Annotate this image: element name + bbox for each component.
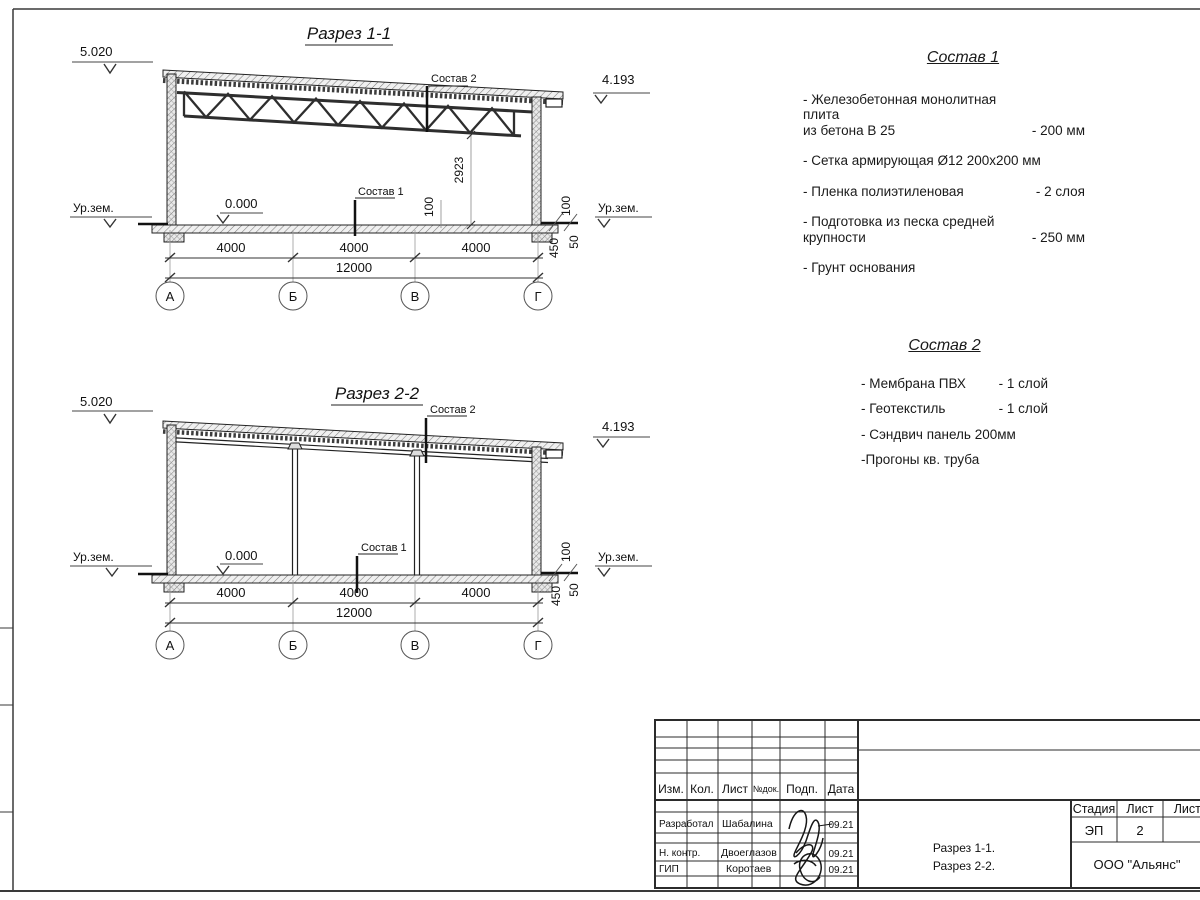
ground-mark-left-2: Ур.зем. bbox=[70, 550, 152, 576]
sostav2-item-name: - Геотекстиль bbox=[861, 401, 945, 417]
sostav2-item-name: -Прогоны кв. труба bbox=[861, 452, 979, 468]
row-name-korotaev: Коротаев bbox=[726, 863, 772, 875]
elev-right-value: 4.193 bbox=[602, 72, 635, 87]
doc-name-line2: Разрез 2-2. bbox=[933, 859, 995, 873]
company-name: ООО "Альянс" bbox=[1094, 857, 1181, 872]
col-podp: Подп. bbox=[786, 782, 818, 796]
col-data: Дата bbox=[828, 782, 855, 796]
dim-450: 450 bbox=[547, 238, 561, 258]
sheet-label: Лист bbox=[1126, 802, 1153, 816]
stage-label: Стадия bbox=[1073, 802, 1116, 816]
ground-right-label: Ур.зем. bbox=[598, 201, 639, 215]
axis-g: Г bbox=[534, 289, 541, 304]
zero-level-value: 0.000 bbox=[225, 196, 258, 211]
drawing-sheet: Разрез 1-1 5.020 4. bbox=[0, 0, 1200, 900]
dim-2923-value: 2923 bbox=[452, 156, 466, 183]
column-a bbox=[167, 74, 176, 225]
sostav1-title: Состав 1 bbox=[803, 50, 1085, 66]
axis-bubbles: А Б В Г bbox=[156, 282, 552, 310]
sostav1-item-name: - Пленка полиэтиленовая bbox=[803, 184, 964, 200]
roof-slab-2 bbox=[163, 421, 563, 450]
column-v-mid bbox=[410, 450, 424, 575]
row-date-3: 09.21 bbox=[828, 865, 853, 876]
axis-a-2: А bbox=[166, 638, 175, 653]
leader-sostav1-label-2: Состав 1 bbox=[361, 542, 407, 554]
ground-right-label-2: Ур.зем. bbox=[598, 550, 639, 564]
span-dim-2: 4000 bbox=[340, 240, 369, 255]
col-izm: Изм. bbox=[658, 782, 684, 796]
dim-100-mid: 100 bbox=[422, 197, 436, 217]
row-date-2: 09.21 bbox=[828, 849, 853, 860]
sostav1-item-name: - Грунт основания bbox=[803, 260, 915, 276]
axis-b-2: Б bbox=[289, 638, 298, 653]
total-dim: 12000 bbox=[336, 260, 372, 275]
sostav2-panel: Состав 2 - Мембрана ПВХ - 1 слой - Геоте… bbox=[861, 338, 1048, 478]
axis-b: Б bbox=[289, 289, 298, 304]
sostav2-item-value: - 1 слой bbox=[991, 401, 1048, 417]
axis-g-2: Г bbox=[534, 638, 541, 653]
row-name-dvoeglazov: Двоеглазов bbox=[721, 847, 777, 859]
section-1-1: Разрез 1-1 5.020 4. bbox=[70, 24, 652, 310]
axis-v-2: В bbox=[411, 638, 420, 653]
column-a-2 bbox=[167, 425, 176, 575]
dim-50-2: 50 bbox=[567, 583, 581, 597]
section-2-2: Разрез 2-2 5.020 bbox=[70, 384, 652, 659]
signature-1 bbox=[789, 810, 832, 856]
sostav1-item: - Пленка полиэтиленовая - 2 слоя bbox=[803, 184, 1085, 200]
sostav2-title: Состав 2 bbox=[861, 338, 1048, 354]
sheet-value: 2 bbox=[1136, 823, 1143, 838]
sostav2-item: -Прогоны кв. труба bbox=[861, 452, 1048, 468]
sostav1-panel: Состав 1 - Железобетонная монолитная пли… bbox=[803, 50, 1085, 291]
leader-sostav2: Состав 2 bbox=[427, 73, 477, 132]
dim-100-right-2: 100 bbox=[559, 542, 573, 562]
sostav1-item-name: - Сетка армирующая Ø12 200х200 мм bbox=[803, 153, 1041, 169]
dim-50: 50 bbox=[567, 235, 581, 249]
edge-beam bbox=[546, 99, 562, 107]
col-list: Лист bbox=[722, 782, 749, 796]
column-g-2 bbox=[532, 447, 541, 575]
sostav2-item-name: - Мембрана ПВХ bbox=[861, 376, 966, 392]
column-g bbox=[532, 97, 541, 225]
axis-v: В bbox=[411, 289, 420, 304]
section2-title: Разрез 2-2 bbox=[335, 384, 420, 403]
footing-left-2 bbox=[164, 583, 184, 592]
dim-100-right: 100 bbox=[559, 196, 573, 216]
sostav1-item: - Грунт основания bbox=[803, 260, 1085, 276]
elev-right-value-2: 4.193 bbox=[602, 419, 635, 434]
sostav1-item-name: - Подготовка из песка средней крупности bbox=[803, 214, 994, 245]
col-ndok: №док. bbox=[753, 784, 779, 794]
stage-value: ЭП bbox=[1085, 823, 1104, 838]
sostav1-item-value: - 250 мм bbox=[1024, 230, 1085, 246]
sostav2-item-name: - Сэндвич панель 200мм bbox=[861, 427, 1016, 443]
axis-bubbles-2: А Б В Г bbox=[156, 631, 552, 659]
sostav1-item: - Железобетонная монолитная плита из бет… bbox=[803, 92, 1085, 139]
row-name-shabalina: Шабалина bbox=[722, 818, 773, 830]
title-block: Изм. Кол. Лист №док. Подп. Дата Разработ… bbox=[655, 720, 1200, 888]
elev-left-value-2: 5.020 bbox=[80, 394, 113, 409]
span-dim-3-2: 4000 bbox=[462, 585, 491, 600]
zero-level-mark-2: 0.000 bbox=[217, 548, 263, 574]
section1-title: Разрез 1-1 bbox=[307, 24, 391, 43]
sostav1-item-value: - 200 мм bbox=[1024, 123, 1085, 139]
col-kol: Кол. bbox=[690, 782, 714, 796]
floor-slab-2 bbox=[152, 575, 558, 583]
elevation-mark-4193-2: 4.193 bbox=[593, 419, 650, 447]
elev-left-value: 5.020 bbox=[80, 44, 113, 59]
elevation-mark-5020: 5.020 bbox=[72, 44, 153, 73]
ground-mark-right: Ур.зем. bbox=[595, 201, 652, 227]
leader-sostav1-label: Состав 1 bbox=[358, 186, 404, 198]
dim-2923: 2923 bbox=[452, 131, 475, 229]
row-role-gip: ГИП bbox=[659, 864, 679, 875]
sostav1-item-name: - Железобетонная монолитная плита из бет… bbox=[803, 92, 1024, 139]
elevation-mark-4193: 4.193 bbox=[593, 72, 650, 103]
ground-left-label: Ур.зем. bbox=[73, 201, 114, 215]
row-role-razrabotal: Разработал bbox=[659, 818, 714, 830]
sostav2-item: - Геотекстиль - 1 слой bbox=[861, 401, 1048, 417]
leader-sostav2-label-2: Состав 2 bbox=[430, 404, 476, 416]
zero-level-mark: 0.000 bbox=[217, 196, 263, 223]
sostav1-item-value: - 2 слоя bbox=[1028, 184, 1085, 200]
sostav2-item: - Мембрана ПВХ - 1 слой bbox=[861, 376, 1048, 392]
sostav2-item: - Сэндвич панель 200мм bbox=[861, 427, 1048, 443]
span-dim-1: 4000 bbox=[217, 240, 246, 255]
sheets-label: Листов bbox=[1174, 802, 1200, 816]
footing-left bbox=[164, 233, 184, 242]
axis-a: А bbox=[166, 289, 175, 304]
sostav1-item: - Сетка армирующая Ø12 200х200 мм bbox=[803, 153, 1085, 169]
sostav2-item-value: - 1 слой bbox=[991, 376, 1048, 392]
row-date-1: 09.21 bbox=[828, 820, 853, 831]
leader-sostav2-label: Состав 2 bbox=[431, 73, 477, 85]
zero-level-value-2: 0.000 bbox=[225, 548, 258, 563]
edge-beam-2 bbox=[546, 450, 562, 458]
ground-mark-right-2: Ур.зем. bbox=[595, 550, 652, 576]
span-dim-1-2: 4000 bbox=[217, 585, 246, 600]
span-dim-2-2: 4000 bbox=[340, 585, 369, 600]
elevation-mark-5020-2: 5.020 bbox=[72, 394, 153, 423]
total-dim-2: 12000 bbox=[336, 605, 372, 620]
signature-2 bbox=[794, 845, 821, 885]
ground-left-label-2: Ур.зем. bbox=[73, 550, 114, 564]
column-b-mid bbox=[288, 443, 302, 575]
dim-450-2: 450 bbox=[549, 586, 563, 606]
span-dim-3: 4000 bbox=[462, 240, 491, 255]
doc-name-line1: Разрез 1-1. bbox=[933, 841, 995, 855]
sostav1-item: - Подготовка из песка средней крупности … bbox=[803, 214, 1085, 245]
row-role-nkontr: Н. контр. bbox=[659, 848, 700, 859]
